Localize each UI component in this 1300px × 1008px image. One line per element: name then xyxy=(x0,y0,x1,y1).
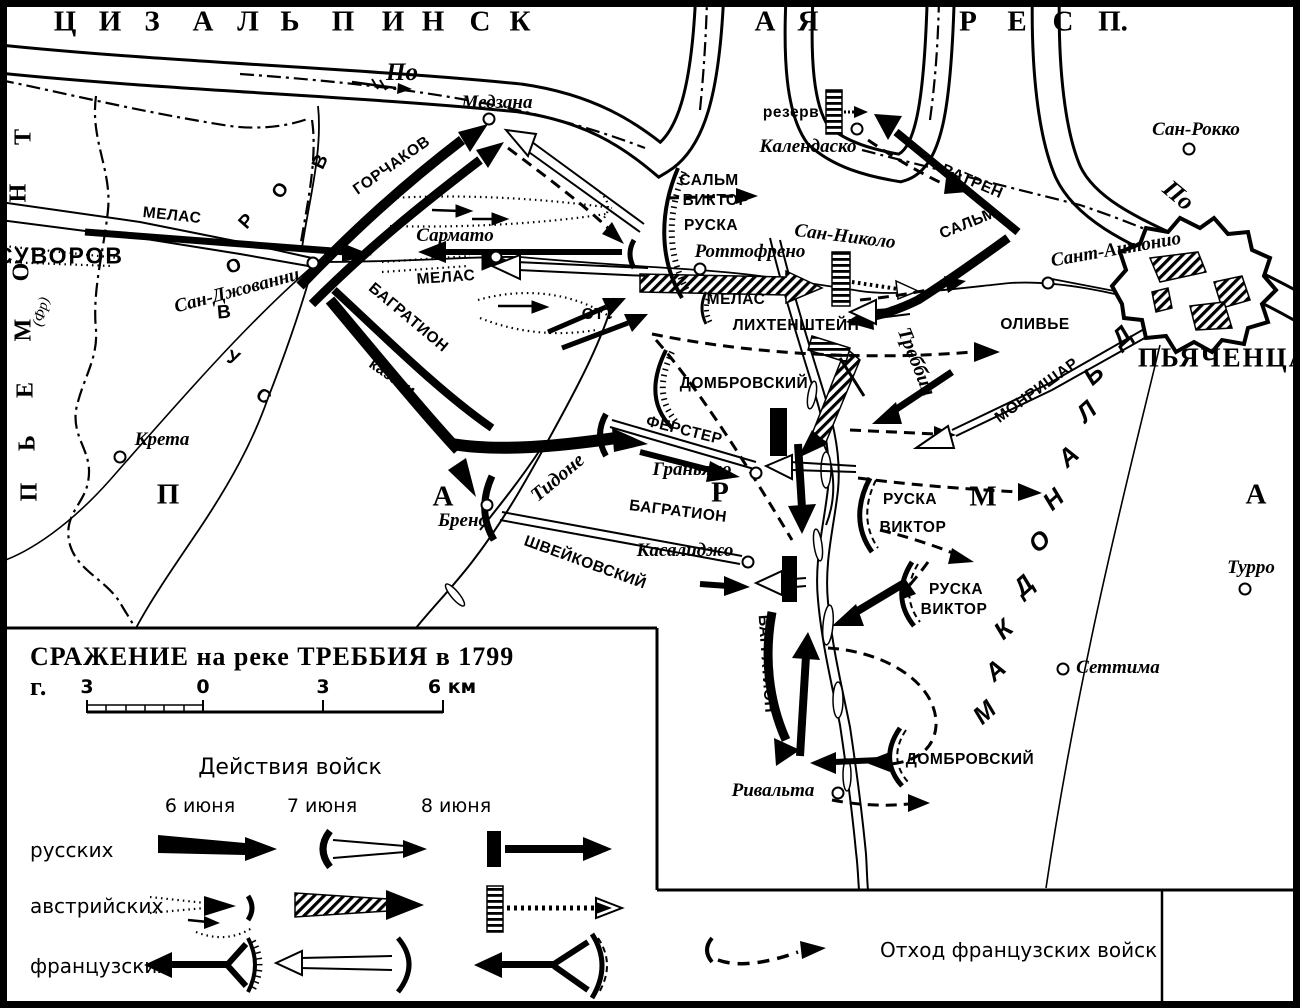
battle-map: СРАЖЕНИЕ на реке ТРЕББИЯ в 1799 г. 3 0 3… xyxy=(0,0,1300,1008)
legend-column-8june: 8 июня xyxy=(421,795,491,817)
town-label: Брено xyxy=(438,510,488,532)
piedmont-letter: Н xyxy=(6,184,33,203)
river-label-po: По xyxy=(386,59,418,87)
town-circle xyxy=(742,556,755,569)
region-letter: С xyxy=(1053,6,1074,39)
parma-letter: А xyxy=(1246,479,1267,512)
region-letter: И xyxy=(382,6,405,39)
legend-french-8june-symbol xyxy=(474,934,607,998)
force-label: ЛИХТЕНШТЕЙН xyxy=(733,317,860,335)
scale-tick: 0 xyxy=(196,676,209,698)
force-label: ВИКТОР xyxy=(683,192,750,210)
town-label: Роттофрено xyxy=(695,241,806,263)
region-letter: П xyxy=(332,6,355,39)
town-circle xyxy=(114,451,127,464)
scale-tick: 6 км xyxy=(428,676,476,698)
region-letter: К xyxy=(509,6,530,39)
force-label: ВИКТОР xyxy=(921,601,988,619)
region-letter: С xyxy=(470,6,491,39)
town-label: Ривальта xyxy=(732,780,815,802)
legend-retreat-label: Отход французских войск xyxy=(880,938,1157,962)
town-circle xyxy=(851,123,864,136)
region-letter: П. xyxy=(1098,6,1128,39)
region-letter: Ц xyxy=(54,6,77,39)
force-label: РУСКА xyxy=(883,491,937,509)
legend-french-7june-symbol xyxy=(276,938,409,992)
force-label: РУСКА xyxy=(929,581,983,599)
town-label: Календаско xyxy=(760,136,857,158)
force-label: ОЛИВЬЕ xyxy=(1000,316,1069,334)
legend-russian-6june-symbol xyxy=(158,835,277,861)
city-label: ПЬЯЧЕНЦА xyxy=(1138,343,1300,374)
force-label: СУВОРОВ xyxy=(0,243,124,270)
town-label: Крета xyxy=(135,429,190,451)
region-letter: И xyxy=(99,6,122,39)
parma-letter: М xyxy=(969,481,996,514)
region-letter: Я xyxy=(798,6,819,39)
town-label: Граньяно xyxy=(652,459,731,481)
piedmont-letter: Т xyxy=(11,129,38,145)
town-circle xyxy=(1239,583,1252,596)
town-label: Медзана xyxy=(462,92,533,114)
town-circle xyxy=(750,467,763,480)
force-label: РУСКА xyxy=(684,217,738,235)
legend-austrian-7june-symbol xyxy=(295,890,424,920)
parma-letter: П xyxy=(157,479,180,512)
town-circle xyxy=(832,787,845,800)
legend-row-french: французских xyxy=(30,954,169,978)
town-circle xyxy=(1042,277,1055,290)
legend-column-6june: 6 июня xyxy=(165,795,235,817)
parma-letter: Р xyxy=(711,477,729,510)
force-label: САЛЬМ xyxy=(679,172,738,190)
force-label: резерв xyxy=(763,104,819,122)
force-label: ДОМБРОВСКИЙ xyxy=(906,751,1034,769)
legend-russian-7june-symbol xyxy=(323,831,427,867)
force-label: ДОМБРОВСКИЙ xyxy=(680,375,808,393)
region-letter: Р xyxy=(959,6,977,39)
scale-tick: 3 xyxy=(80,676,93,698)
legend-austrian-6june-symbol xyxy=(150,896,252,937)
legend-russian-8june-symbol xyxy=(487,831,612,867)
piedmont-letter: Ь xyxy=(15,435,42,451)
region-letter: Ь xyxy=(280,6,299,39)
piedmont-letter: Е xyxy=(13,382,40,398)
force-label: ОТТ xyxy=(582,306,615,324)
legend-column-7june: 7 июня xyxy=(287,795,357,817)
parma-letter: А xyxy=(433,481,454,514)
region-letter: З xyxy=(144,6,159,39)
town-circle xyxy=(694,263,707,276)
legend-row-austrian: австрийских xyxy=(30,894,163,918)
town-circle xyxy=(1057,663,1070,676)
legend-austrian-8june-symbol xyxy=(487,886,622,932)
region-letter: А xyxy=(193,6,214,39)
town-circle xyxy=(490,251,503,264)
region-letter: Л xyxy=(237,6,259,39)
town-circle xyxy=(1183,143,1196,156)
town-label: Сан-Рокко xyxy=(1152,119,1240,141)
town-circle xyxy=(483,113,496,126)
town-label: Сармато xyxy=(416,225,493,247)
force-label: ВИКТОР xyxy=(880,519,947,537)
austrian-fort-san-nicolo xyxy=(832,252,918,306)
legend-row-russian: русских xyxy=(30,838,113,862)
region-letter: А xyxy=(755,6,776,39)
force-label: МЕЛАС xyxy=(707,291,766,309)
legend-header: Действия войск xyxy=(160,755,420,780)
town-label: Турро xyxy=(1227,557,1275,579)
scale-tick: 3 xyxy=(316,676,329,698)
town-circle xyxy=(307,257,320,270)
region-letter: Е xyxy=(1007,6,1026,39)
legend-retreat-symbol xyxy=(707,938,826,964)
town-label: Касалиджо xyxy=(637,540,734,562)
piedmont-letter: П xyxy=(17,483,44,502)
region-letter: Н xyxy=(422,6,445,39)
town-label: Сеттима xyxy=(1076,657,1160,679)
